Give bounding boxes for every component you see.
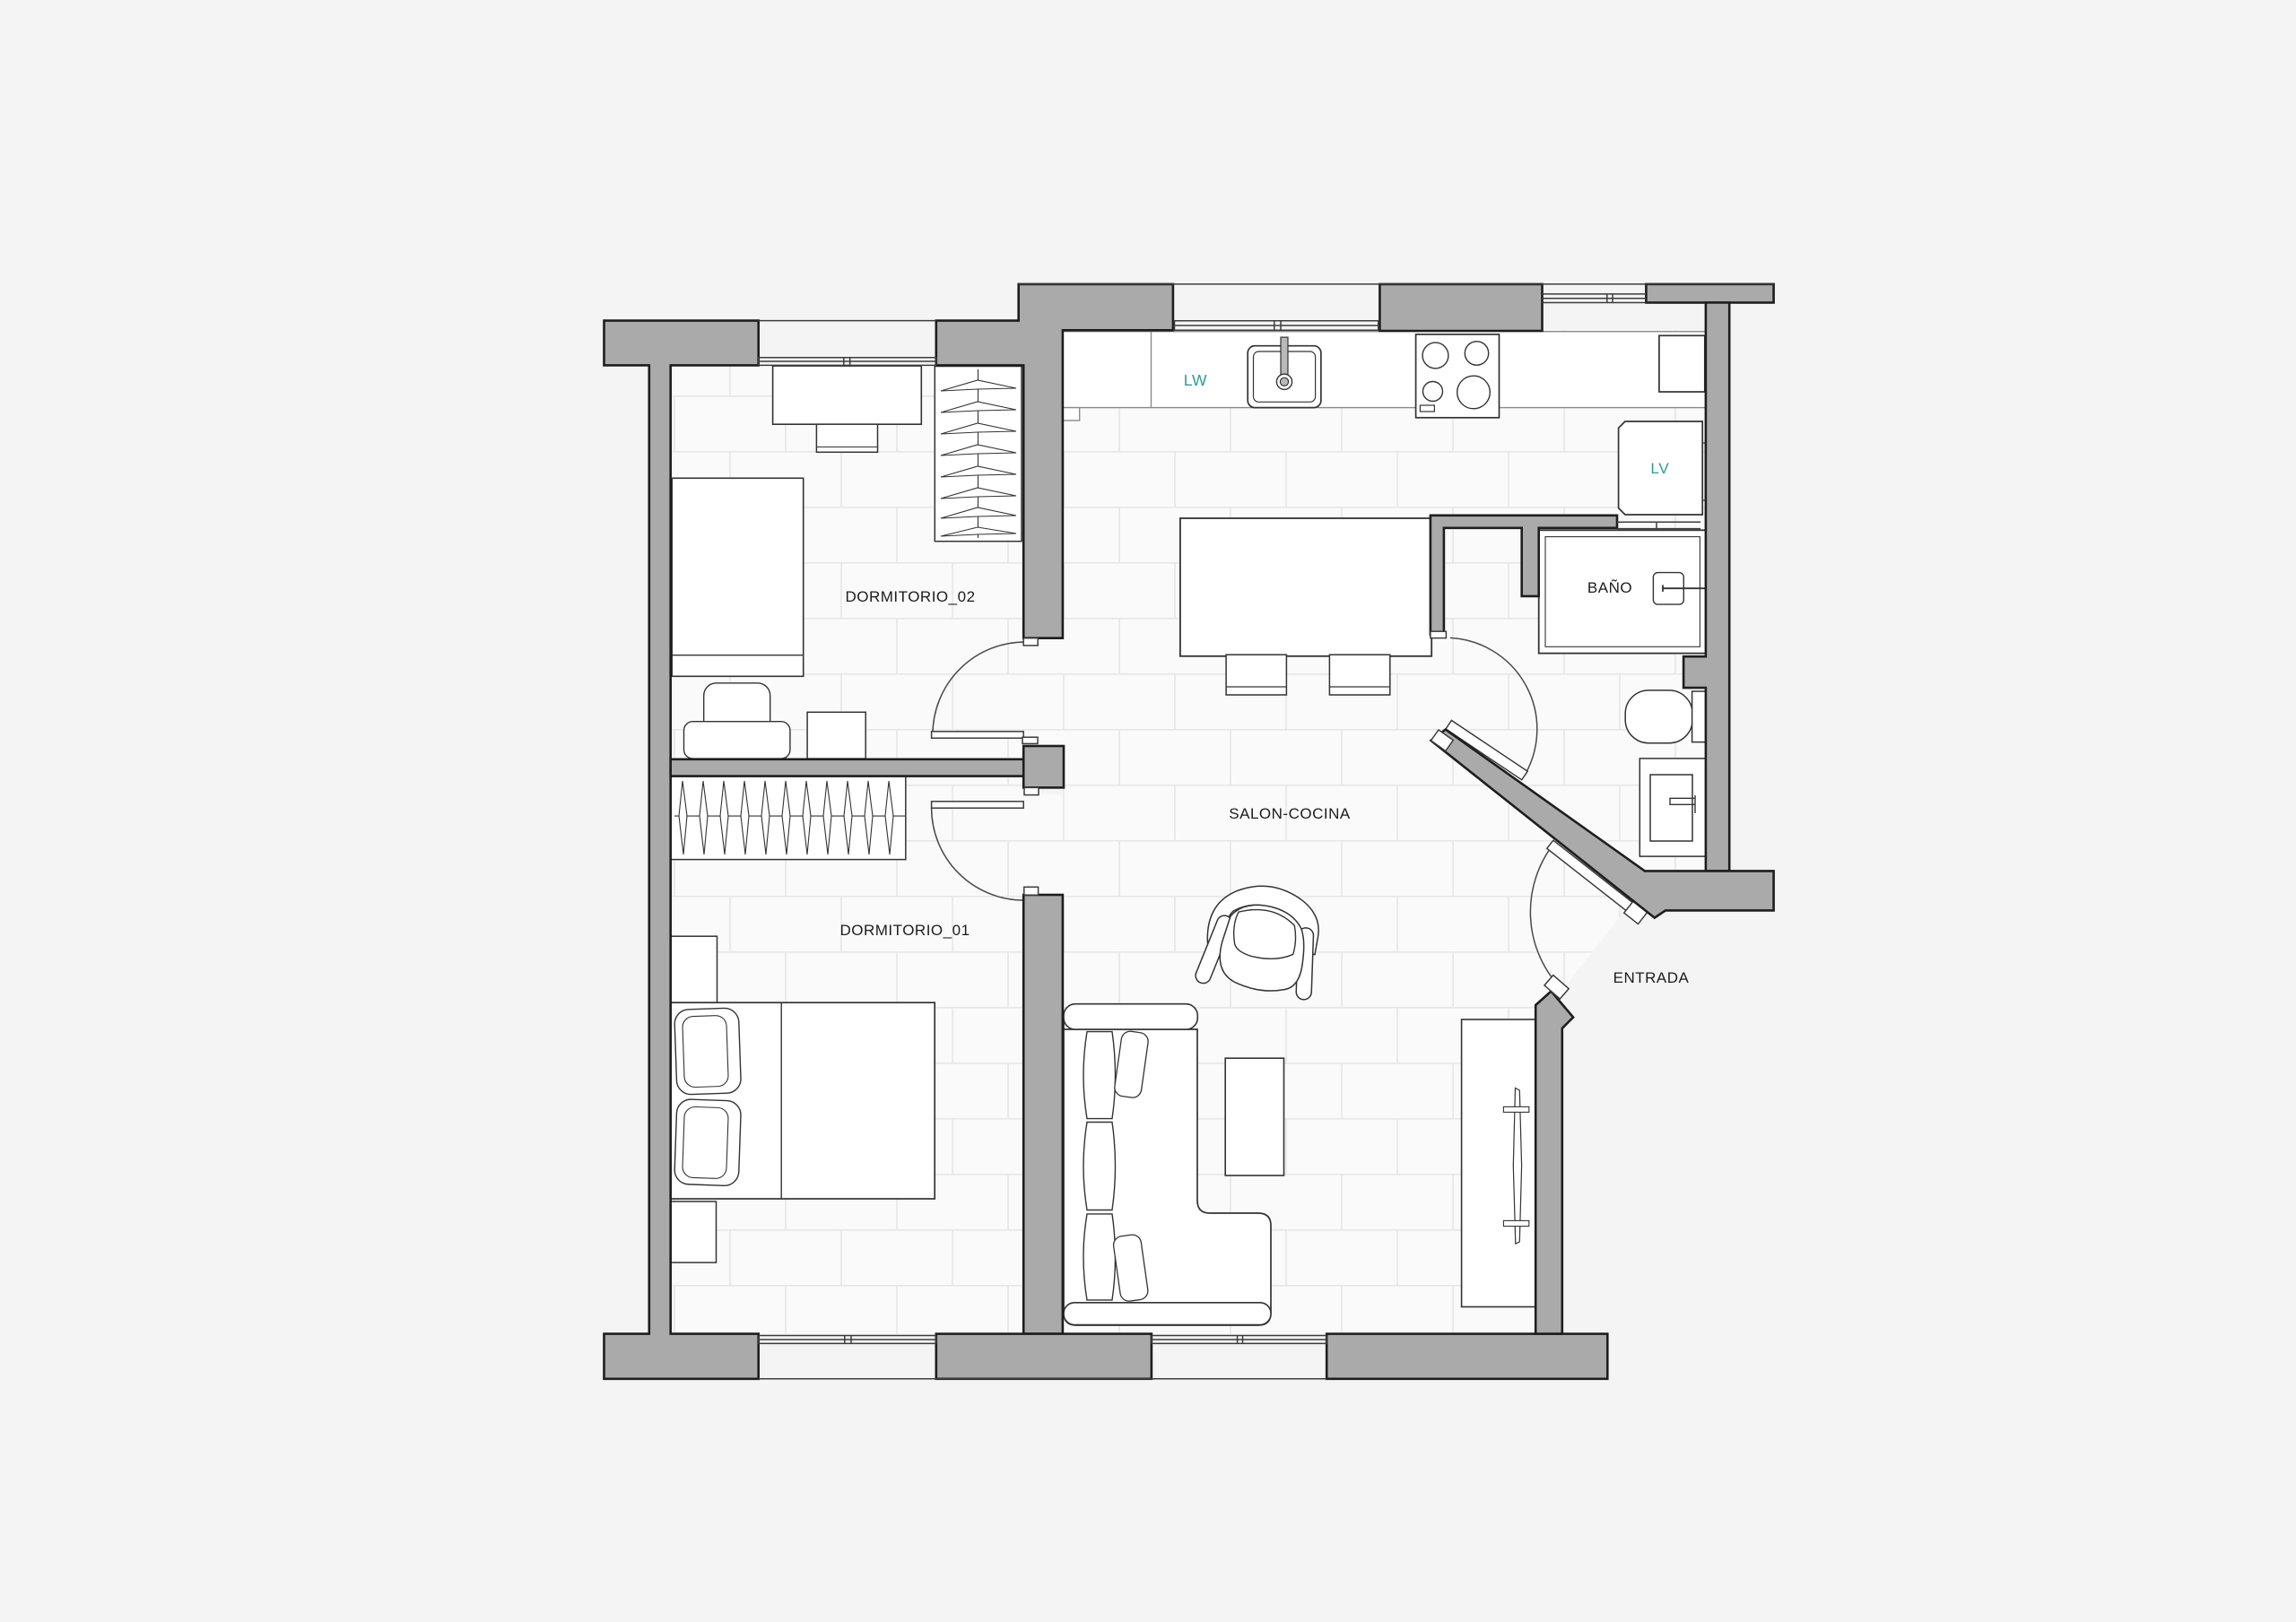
svg-text:SALON-COCINA: SALON-COCINA	[1229, 805, 1351, 822]
svg-text:DORMITORIO_02: DORMITORIO_02	[845, 588, 975, 605]
svg-text:ENTRADA: ENTRADA	[1613, 969, 1690, 986]
svg-text:LV: LV	[1650, 460, 1669, 477]
svg-text:DORMITORIO_01: DORMITORIO_01	[839, 922, 970, 939]
svg-text:LW: LW	[1184, 371, 1208, 389]
svg-text:BAÑO: BAÑO	[1587, 579, 1632, 596]
